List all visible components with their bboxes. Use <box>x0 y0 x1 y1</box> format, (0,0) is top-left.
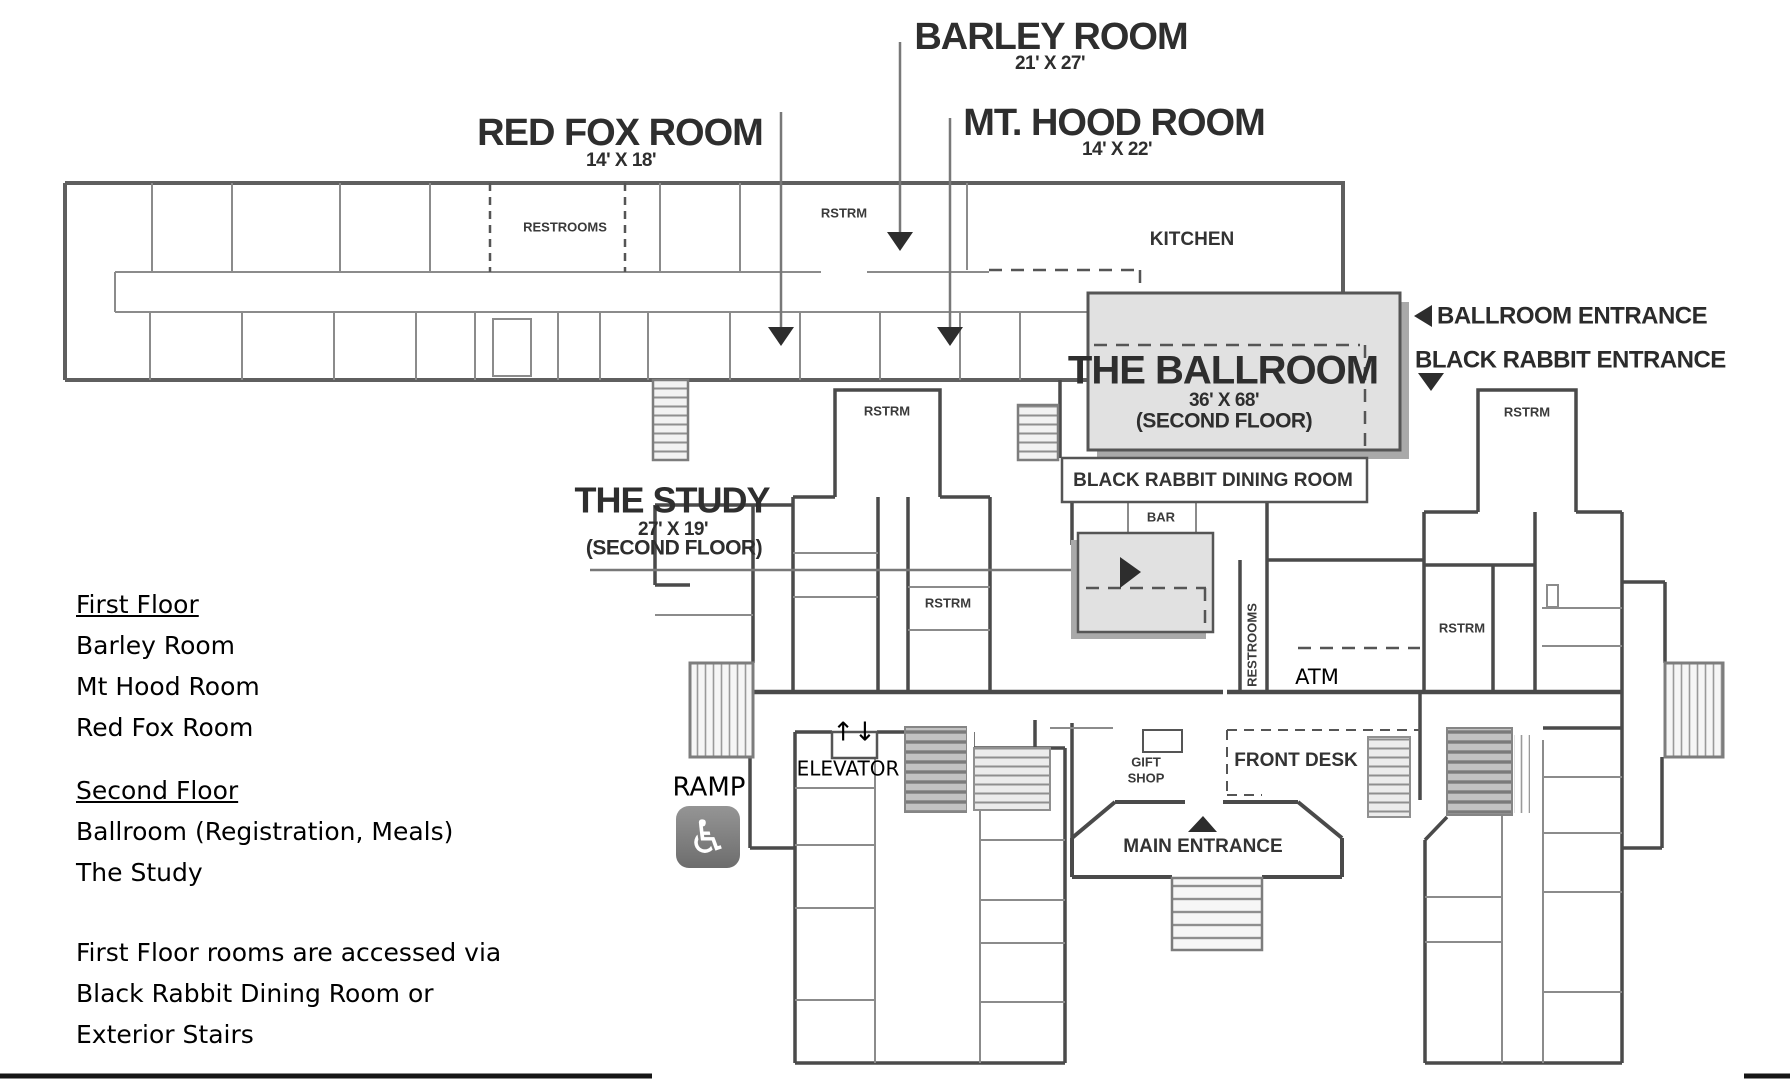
lobby-stairs-left <box>905 725 1050 815</box>
legend-access-note: First Floor rooms are accessed via Black… <box>76 932 501 1055</box>
red-fox-room-arrow-icon <box>768 327 794 346</box>
exterior-stairs-dining <box>1018 405 1058 460</box>
legend-note-line: First Floor rooms are accessed via <box>76 932 501 973</box>
front-desk-label: FRONT DESK <box>1234 750 1358 771</box>
ballroom-entrance-arrow-icon <box>1414 305 1432 327</box>
black-rabbit-entrance-label: BLACK RABBIT ENTRANCE <box>1415 346 1726 373</box>
floor-plan-drawing: BARLEY ROOM 21' X 27' RED FOX ROOM 14' X… <box>0 0 1790 1080</box>
ballroom-dims: 36' X 68' <box>1189 390 1259 411</box>
gift-shop-label-line2: SHOP <box>1128 770 1165 785</box>
bar-label: BAR <box>1147 509 1176 524</box>
rstrm-mid-left-label: RSTRM <box>864 403 910 418</box>
dining-room-label: BLACK RABBIT DINING ROOM <box>1073 470 1353 491</box>
ramp-east <box>1665 663 1723 757</box>
legend-room-item: Ballroom (Registration, Meals) <box>76 811 453 852</box>
barley-room-arrow-icon <box>887 232 913 251</box>
legend-room-item: Mt Hood Room <box>76 666 260 707</box>
study-floor-note: (SECOND FLOOR) <box>586 537 762 560</box>
legend-note-line: Exterior Stairs <box>76 1014 501 1055</box>
ramp-west <box>690 663 753 757</box>
ballroom-floor-note: (SECOND FLOOR) <box>1136 410 1312 433</box>
main-entrance-arrow-icon <box>1188 816 1217 832</box>
lobby-stairs-right <box>1368 728 1530 817</box>
ballroom-label: THE BALLROOM <box>1068 349 1378 393</box>
restrooms-label: RESTROOMS <box>523 219 607 234</box>
red-fox-room-label: RED FOX ROOM <box>477 112 763 154</box>
study-box <box>1071 533 1213 639</box>
barley-room-dims: 21' X 27' <box>1015 53 1085 74</box>
rstrm-mid-right-label: RSTRM <box>1439 620 1485 635</box>
legend-room-item: The Study <box>76 852 453 893</box>
restrooms-vertical-label: RESTROOMS <box>1244 603 1259 687</box>
ramp-label: RAMP <box>673 773 746 803</box>
hotel-floor-plan: BARLEY ROOM 21' X 27' RED FOX ROOM 14' X… <box>0 0 1790 1080</box>
legend-room-item: Red Fox Room <box>76 707 260 748</box>
elevator-arrows-icon: ↑↓ <box>832 718 876 748</box>
ballroom-entrance-label: BALLROOM ENTRANCE <box>1437 302 1708 329</box>
atm-label: ATM <box>1295 665 1339 689</box>
main-entrance-label: MAIN ENTRANCE <box>1123 836 1282 857</box>
gift-shop-label-line1: GIFT <box>1131 754 1161 769</box>
kitchen-label: KITCHEN <box>1150 229 1234 250</box>
gift-shop-counter <box>1143 730 1182 752</box>
mt-hood-room-label: MT. HOOD ROOM <box>963 102 1265 144</box>
red-fox-room-dims: 14' X 18' <box>586 150 656 171</box>
study-label: THE STUDY <box>574 480 770 521</box>
legend-first-floor: First Floor Barley Room Mt Hood Room Red… <box>76 584 260 748</box>
legend-first-floor-heading: First Floor <box>76 584 260 625</box>
rstrm-right-top-label: RSTRM <box>1504 404 1550 419</box>
mt-hood-room-dims: 14' X 22' <box>1082 139 1152 160</box>
legend-second-floor: Second Floor Ballroom (Registration, Mea… <box>76 770 453 893</box>
legend-second-floor-heading: Second Floor <box>76 770 453 811</box>
wheelchair-glyph: ♿ <box>687 814 728 860</box>
legend-note-line: Black Rabbit Dining Room or <box>76 973 501 1014</box>
elevator-label: ELEVATOR <box>797 757 900 781</box>
rstrm-mid-label: RSTRM <box>925 595 971 610</box>
black-rabbit-entrance-arrow-icon <box>1418 373 1444 391</box>
legend-room-item: Barley Room <box>76 625 260 666</box>
main-entrance-steps <box>1172 878 1262 950</box>
rstrm-top-wing-label: RSTRM <box>821 205 867 220</box>
exterior-stairs-north <box>653 380 688 460</box>
wheelchair-accessibility-icon: ♿ <box>676 806 740 868</box>
barley-room-label: BARLEY ROOM <box>914 16 1187 58</box>
